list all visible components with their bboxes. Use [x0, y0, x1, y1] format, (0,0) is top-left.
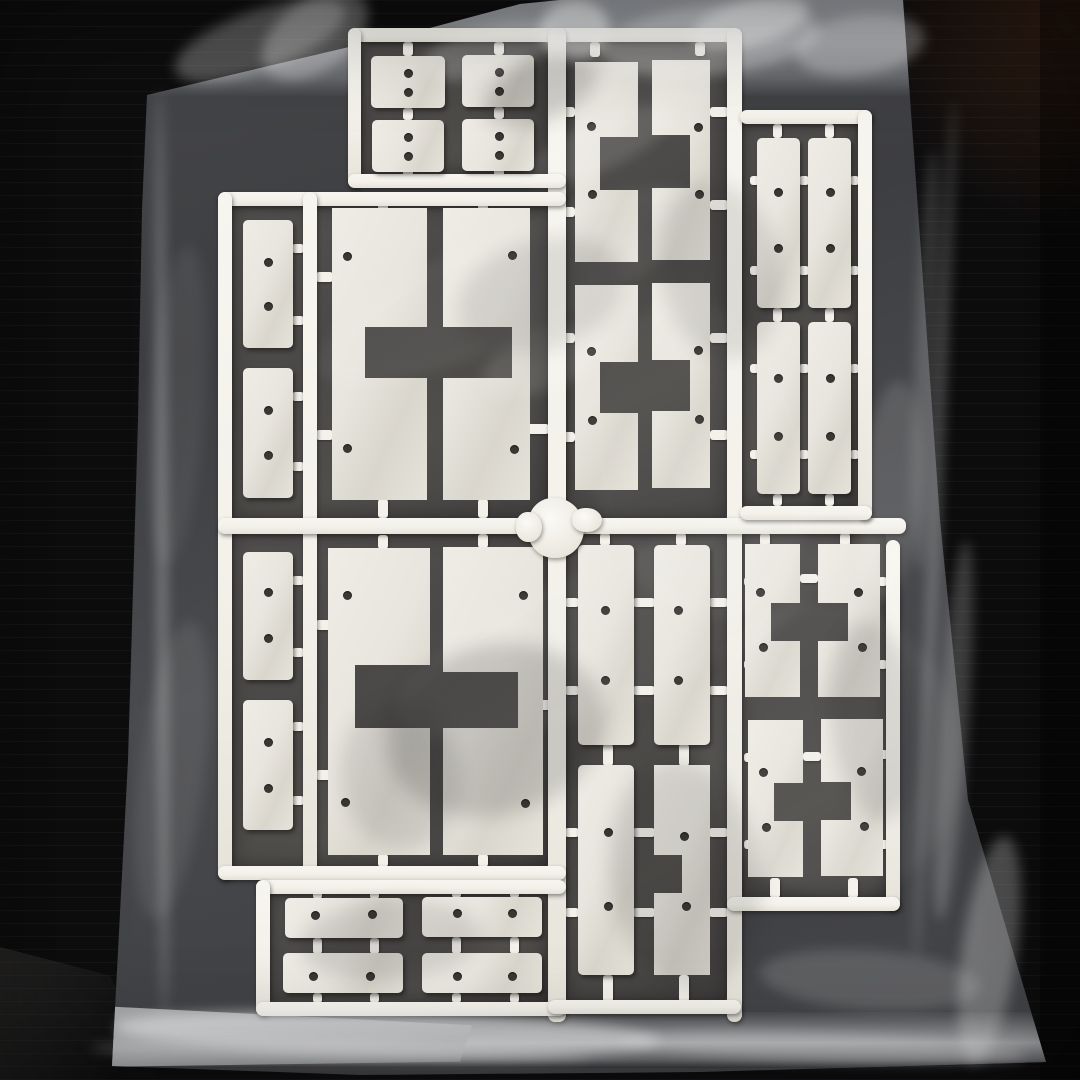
connector-tab — [378, 535, 388, 549]
ejector-pin-hole — [694, 123, 703, 132]
ejector-pin-hole — [826, 244, 835, 253]
connector-tab — [773, 124, 782, 138]
runner-rail — [218, 192, 232, 880]
connector-tab — [695, 42, 705, 56]
ejector-pin-hole — [495, 87, 504, 96]
plastic-panel-part — [422, 897, 542, 937]
connector-tab — [565, 598, 579, 607]
connector-tab — [848, 878, 858, 898]
runner-rail — [256, 880, 270, 1016]
plastic-panel-part — [462, 55, 534, 107]
ejector-pin-hole — [604, 902, 613, 911]
ejector-pin-hole — [404, 133, 413, 142]
runner-rail — [548, 1000, 741, 1014]
connector-tab — [565, 908, 579, 917]
ejector-pin-hole — [495, 151, 504, 160]
ejector-pin-hole — [510, 445, 519, 454]
ejector-pin-hole — [857, 767, 866, 776]
model-kit-sprue — [0, 0, 1080, 1080]
plastic-panel-part — [578, 765, 634, 975]
runner-rail — [348, 28, 740, 42]
ejector-pin-hole — [587, 347, 596, 356]
ejector-pin-hole — [826, 188, 835, 197]
ejector-pin-hole — [519, 591, 528, 600]
ejector-pin-hole — [404, 88, 413, 97]
ejector-pin-hole — [774, 244, 783, 253]
connector-tab — [378, 499, 388, 518]
ejector-pin-hole — [588, 190, 597, 199]
connector-tab — [478, 534, 488, 548]
ejector-pin-hole — [341, 798, 350, 807]
ejector-pin-hole — [774, 188, 783, 197]
connector-tab — [370, 938, 379, 954]
ejector-pin-hole — [453, 972, 462, 981]
ejector-pin-hole — [774, 374, 783, 383]
runner-rail — [218, 192, 566, 206]
connector-tab — [825, 308, 834, 322]
connector-tab — [452, 937, 461, 954]
connector-tab — [709, 828, 728, 837]
connector-tab — [313, 938, 322, 954]
connector-tab — [565, 686, 579, 695]
connector-tab — [770, 878, 780, 898]
connector-tab — [633, 828, 655, 837]
plastic-panel-part — [654, 545, 710, 745]
plastic-panel-part — [422, 953, 542, 993]
plastic-panel-part — [243, 220, 293, 348]
ejector-pin-hole — [495, 68, 504, 77]
ejector-pin-hole — [495, 132, 504, 141]
runner-rail — [256, 1002, 566, 1016]
ejector-pin-hole — [604, 828, 613, 837]
ejector-pin-hole — [508, 251, 517, 260]
plastic-panel-part — [808, 322, 851, 494]
ejector-pin-hole — [453, 909, 462, 918]
ejector-pin-hole — [674, 676, 683, 685]
ejector-pin-hole — [695, 190, 704, 199]
connector-tab — [710, 333, 728, 343]
connector-tab — [709, 686, 728, 695]
connector-tab — [710, 200, 728, 210]
ejector-pin-hole — [404, 152, 413, 161]
injection-gate-blob — [572, 508, 602, 532]
ejector-pin-hole — [601, 676, 610, 685]
plastic-panel-part — [578, 545, 634, 745]
connector-tab — [494, 42, 504, 55]
ejector-pin-hole — [264, 634, 273, 643]
plastic-panel-part — [372, 120, 444, 172]
ejector-pin-hole — [854, 588, 863, 597]
plastic-panel-part — [243, 368, 293, 498]
runner-rail — [348, 174, 566, 188]
ejector-pin-hole — [264, 738, 273, 747]
runner-rail — [858, 110, 872, 520]
ejector-pin-hole — [587, 122, 596, 131]
plastic-panel-part — [757, 322, 800, 494]
ejector-pin-hole — [264, 451, 273, 460]
connector-tab — [403, 42, 413, 56]
ejector-pin-hole — [601, 606, 610, 615]
connector-tab — [633, 908, 655, 917]
runner-rail — [348, 28, 361, 188]
plastic-panel-part — [757, 138, 800, 308]
connector-tab — [633, 686, 655, 695]
ejector-pin-hole — [264, 302, 273, 311]
connector-tab — [590, 42, 600, 57]
ejector-pin-hole — [759, 768, 768, 777]
connector-tab — [773, 494, 782, 506]
injection-gate-blob — [516, 512, 542, 542]
connector-tab — [825, 124, 834, 138]
ejector-pin-hole — [508, 909, 517, 918]
ejector-pin-hole — [762, 823, 771, 832]
ejector-pin-hole — [343, 252, 352, 261]
connector-tab — [403, 108, 413, 120]
plastic-panel-part — [462, 119, 534, 171]
connector-tab — [679, 744, 689, 766]
connector-tab — [603, 744, 613, 766]
connector-tab — [316, 272, 333, 282]
ejector-pin-hole — [694, 346, 703, 355]
ejector-pin-hole — [264, 784, 273, 793]
ejector-pin-hole — [309, 972, 318, 981]
ejector-pin-hole — [680, 832, 689, 841]
ejector-pin-hole — [404, 69, 413, 78]
ejector-pin-hole — [674, 606, 683, 615]
ejector-pin-hole — [508, 972, 517, 981]
plastic-panel-part — [283, 953, 403, 993]
runner-rail — [303, 192, 317, 880]
connector-tab — [565, 828, 579, 837]
ejector-pin-hole — [826, 374, 835, 383]
runner-rail — [886, 540, 900, 911]
ejector-pin-hole — [682, 902, 691, 911]
ejector-pin-hole — [368, 910, 377, 919]
connector-tab — [510, 937, 519, 954]
ejector-pin-hole — [588, 416, 597, 425]
ejector-pin-hole — [858, 643, 867, 652]
connector-tab — [603, 975, 613, 1002]
runner-rail — [727, 897, 900, 911]
connector-tab — [825, 494, 834, 506]
ejector-pin-hole — [826, 432, 835, 441]
ejector-pin-hole — [774, 432, 783, 441]
plastic-panel-part — [243, 552, 293, 680]
runner-rail — [740, 110, 872, 124]
connector-tab — [494, 107, 504, 119]
runner-rail — [256, 880, 566, 894]
photo-stage — [0, 0, 1080, 1080]
ejector-pin-hole — [264, 588, 273, 597]
ejector-pin-hole — [756, 588, 765, 597]
ejector-pin-hole — [366, 972, 375, 981]
runner-rail — [218, 866, 566, 880]
ejector-pin-hole — [860, 822, 869, 831]
connector-tab — [800, 574, 818, 583]
ejector-pin-hole — [264, 406, 273, 415]
connector-tab — [316, 430, 333, 440]
connector-tab — [773, 308, 782, 322]
connector-tab — [633, 598, 655, 607]
connector-tab — [709, 598, 728, 607]
connector-tab — [478, 499, 488, 518]
plastic-panel-part — [285, 898, 403, 938]
ejector-pin-hole — [343, 591, 352, 600]
ejector-pin-hole — [264, 258, 273, 267]
ejector-pin-hole — [695, 415, 704, 424]
ejector-pin-hole — [521, 799, 530, 808]
connector-tab — [710, 430, 728, 440]
connector-tab — [803, 752, 821, 761]
ejector-pin-hole — [343, 444, 352, 453]
plastic-panel-part — [371, 56, 445, 108]
ejector-pin-hole — [759, 643, 768, 652]
ejector-pin-hole — [311, 911, 320, 920]
connector-tab — [709, 908, 728, 917]
connector-tab — [679, 975, 689, 1002]
runner-rail — [740, 506, 872, 520]
connector-tab — [710, 107, 728, 117]
plastic-panel-part — [243, 700, 293, 830]
connector-tab — [527, 424, 549, 434]
plastic-panel-part — [808, 138, 851, 308]
